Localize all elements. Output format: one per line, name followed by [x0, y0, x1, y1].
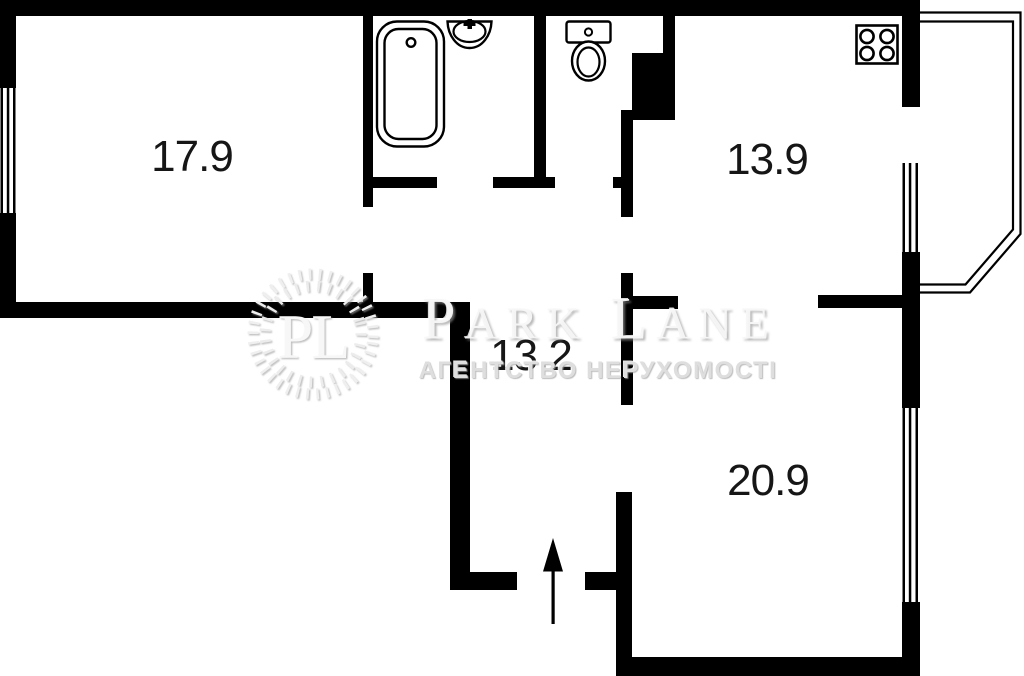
wall-right-a	[902, 16, 920, 107]
toilet-icon	[567, 22, 611, 81]
wall-room2-left-lower	[616, 590, 632, 657]
stove-icon	[857, 26, 898, 64]
wall-kitchen-stub	[633, 296, 678, 309]
wall-wc-right	[621, 110, 633, 217]
wall-left-upper	[0, 16, 16, 88]
wall-entry-right-stub	[585, 572, 632, 590]
wall-kitchen-left-top	[663, 16, 675, 53]
wall-shaft-block	[632, 53, 675, 120]
window-room1	[1, 88, 16, 213]
wall-hall-left	[450, 302, 470, 572]
floor-plan: 17.9 13.9 13.2 20.9 PL PARKLANE АГЕНТСТВ…	[0, 0, 1024, 676]
wall-room1-door-stub	[363, 273, 373, 306]
wall-room1-bottom	[0, 302, 470, 318]
wall-entry-left-stub	[450, 572, 517, 590]
wall-bath-wc-divider	[534, 16, 546, 188]
room-area-label-kitchen: 13.9	[726, 135, 808, 185]
wall-hall-room2-lower	[616, 492, 632, 572]
wall-top	[0, 0, 920, 16]
room-area-label-hallway: 13.2	[490, 331, 572, 381]
wall-kitchen-bottom	[818, 295, 920, 308]
wall-right-b	[902, 252, 920, 408]
sink-icon	[448, 19, 492, 48]
window-kitchen	[903, 163, 919, 252]
entrance-arrow-icon	[543, 538, 563, 624]
walls	[0, 0, 920, 676]
wall-wc-bottom	[493, 177, 555, 188]
window-room2	[903, 408, 919, 602]
room-area-label-top-left: 17.9	[151, 132, 233, 182]
bathtub-icon	[377, 22, 444, 147]
wall-bottom	[616, 657, 920, 676]
wall-hall-room2-upper	[621, 273, 633, 405]
room-area-label-bottom-right: 20.9	[727, 456, 809, 506]
wall-bath-bottom	[370, 177, 437, 188]
balcony-outline	[920, 13, 1021, 293]
